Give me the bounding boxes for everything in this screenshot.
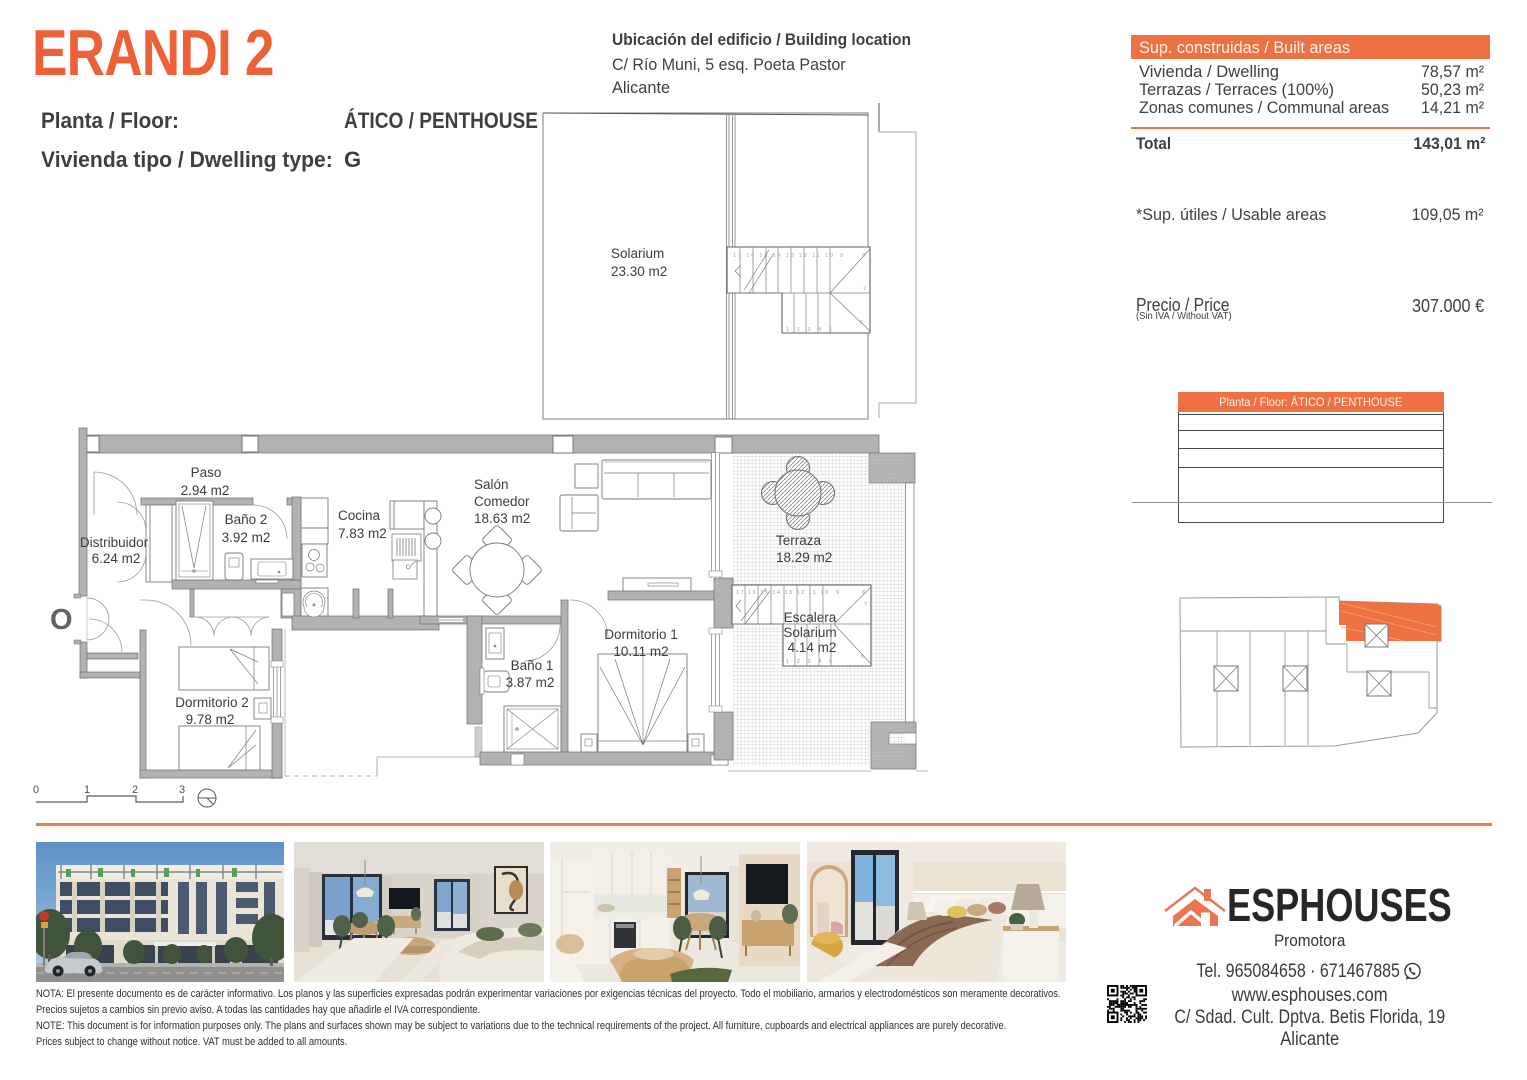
svg-text:Solarium: Solarium <box>783 625 836 640</box>
svg-text:Terraza: Terraza <box>776 533 822 548</box>
svg-text:Cocina: Cocina <box>338 508 381 523</box>
svg-text:6: 6 <box>860 320 863 326</box>
svg-text:7: 7 <box>864 602 867 608</box>
svg-text:23.30 m2: 23.30 m2 <box>611 264 667 279</box>
svg-text:Paso: Paso <box>191 465 222 480</box>
svg-text:Distribuidor: Distribuidor <box>80 535 149 550</box>
svg-text:8: 8 <box>862 590 865 596</box>
svg-text:9: 9 <box>836 590 839 596</box>
svg-text:2: 2 <box>132 784 138 796</box>
svg-text:Baño 1: Baño 1 <box>511 658 554 673</box>
svg-text:9: 9 <box>840 253 843 259</box>
svg-text:9.78 m2: 9.78 m2 <box>186 712 235 727</box>
svg-text:Escalera: Escalera <box>784 610 837 625</box>
svg-text:Solarium: Solarium <box>611 246 664 261</box>
svg-text:10.11 m2: 10.11 m2 <box>613 644 668 659</box>
svg-text:6: 6 <box>861 654 864 660</box>
svg-text:7: 7 <box>863 286 866 292</box>
svg-text:6.24 m2: 6.24 m2 <box>92 551 141 566</box>
svg-text:17 16 15 14 13 12 11 10: 17 16 15 14 13 12 11 10 <box>733 253 833 259</box>
svg-text:Dormitorio 2: Dormitorio 2 <box>175 695 249 710</box>
svg-text:3.92 m2: 3.92 m2 <box>222 530 271 545</box>
svg-text:18.63 m2: 18.63 m2 <box>474 511 530 526</box>
svg-text:0: 0 <box>33 784 39 796</box>
svg-text:17 16 15 14 13 12 11 10: 17 16 15 14 13 12 11 10 <box>736 590 828 596</box>
svg-text:Baño 2: Baño 2 <box>225 512 268 527</box>
svg-text:8: 8 <box>862 253 865 259</box>
svg-text:3.87 m2: 3.87 m2 <box>506 675 555 690</box>
svg-text:7.83 m2: 7.83 m2 <box>338 526 387 541</box>
svg-text:Dormitorio 1: Dormitorio 1 <box>604 627 678 642</box>
svg-text:1 2 3 4 5: 1 2 3 4 5 <box>786 327 832 333</box>
svg-text:18.29 m2: 18.29 m2 <box>776 550 832 565</box>
svg-text:Comedor: Comedor <box>474 494 530 509</box>
svg-text:O: O <box>50 604 73 636</box>
svg-text:1 2 3 4 5: 1 2 3 4 5 <box>786 659 832 665</box>
svg-text:2.94 m2: 2.94 m2 <box>181 483 230 498</box>
svg-text:1: 1 <box>84 784 90 796</box>
svg-text:Salón: Salón <box>474 477 509 492</box>
svg-text:3: 3 <box>179 784 185 796</box>
svg-text:4.14 m2: 4.14 m2 <box>788 640 837 655</box>
